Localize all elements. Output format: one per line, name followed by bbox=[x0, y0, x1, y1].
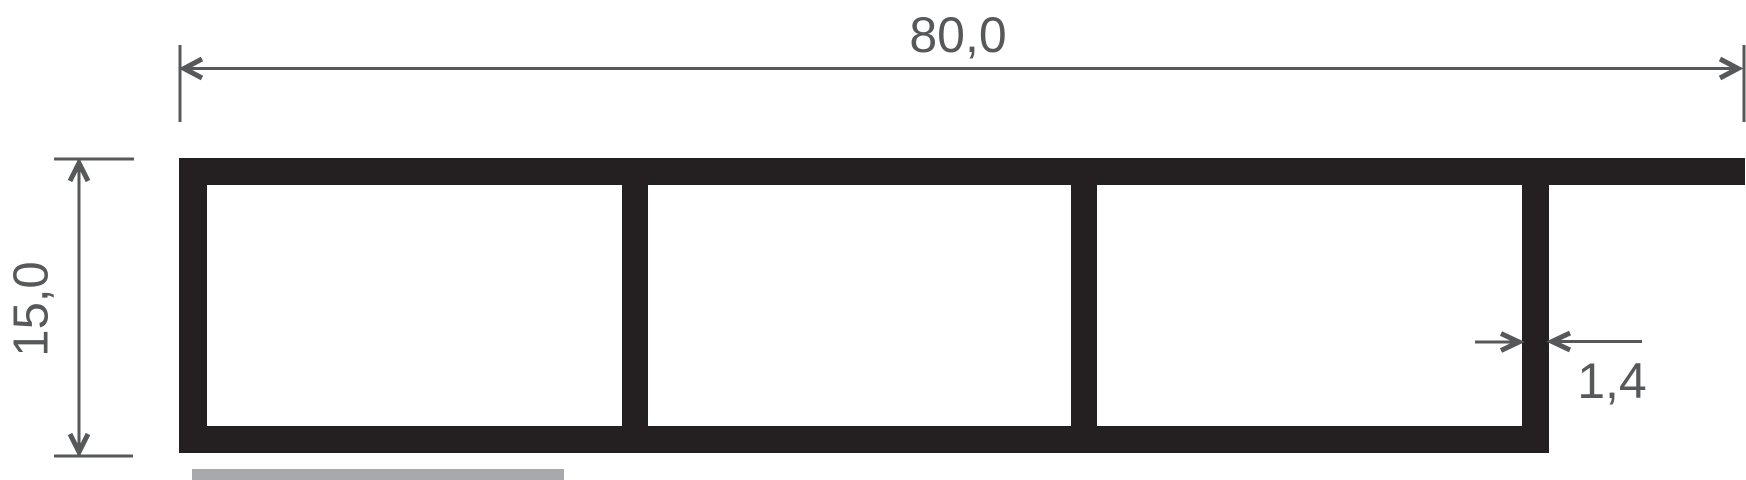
svg-text:15,0: 15,0 bbox=[5, 261, 59, 356]
svg-text:1,4: 1,4 bbox=[1577, 353, 1647, 409]
svg-text:80,0: 80,0 bbox=[909, 7, 1006, 63]
